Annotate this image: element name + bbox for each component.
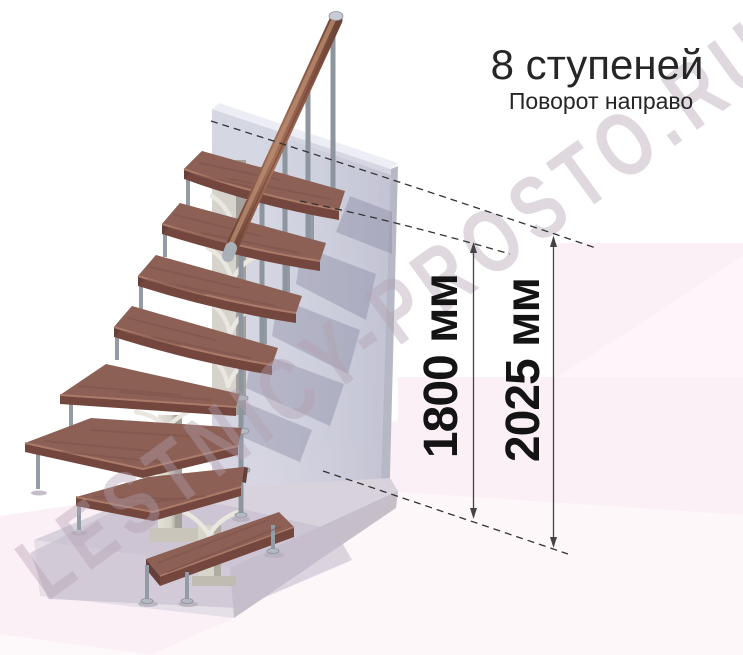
svg-text:2025 мм: 2025 мм — [497, 278, 550, 462]
svg-text:1800 мм: 1800 мм — [415, 274, 468, 458]
svg-text:8 ступеней: 8 ступеней — [491, 41, 704, 88]
svg-text:Поворот направо: Поворот направо — [509, 88, 693, 114]
